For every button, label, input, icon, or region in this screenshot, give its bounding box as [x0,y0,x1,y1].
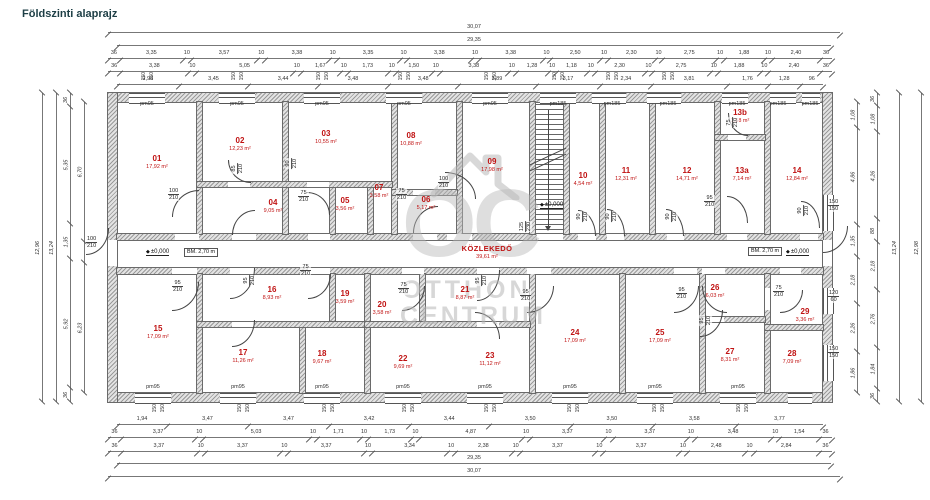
door-size-label: 85210 [231,163,244,174]
dimension-value: 1,73 [368,429,411,436]
room-area: 5,17 m² [396,205,456,211]
dimension-value: 10 [329,50,337,57]
level-marker: ±0,000 [146,249,169,256]
dimension-value: 10 [522,429,530,436]
dimension-value: 2,76 [870,314,876,325]
room-label: 0917,98 m² [462,157,522,173]
dimension-segment: 36 [62,388,70,402]
door-size-label: 95210 [699,315,712,326]
dimension-value: 1,35 [63,236,69,247]
room-area: 17,92 m² [127,164,187,170]
parapet-label: pm185 [656,101,680,107]
parapet-label: pm95 [310,101,334,107]
parapet-label: pm95 [558,384,582,390]
wall [765,325,823,330]
dimension-value: 3,37 [520,443,596,450]
dimension-column: 13,24 [48,93,57,402]
dimension-value: 10 [293,63,301,70]
dimension-value: 3,89 [458,76,535,83]
dimension-value: 3,48 [318,76,388,83]
dimension-value: 2,26 [850,323,856,334]
dimension-value: 2,40 [772,50,820,57]
parapet-label: pm95 [310,384,334,390]
stair-direction-arrow [545,226,551,231]
dimension-value: 6,70 [77,166,83,177]
wall [392,102,397,234]
dimension-value: 10 [340,63,348,70]
room-area: 1,58 m² [710,118,770,124]
door-size-label: 95210 [676,287,687,300]
room-area: 3,56 m² [315,206,375,212]
dimension-value: 3,38 [479,50,543,57]
door-arc [727,196,748,223]
window-dim-pair: 150150 [736,404,750,412]
dimension-row: 363,37103,37103,37103,34102,38103,37103,… [108,443,832,452]
dimension-column: 6,706,23 [76,102,85,393]
dimension-value: 1,94 [117,416,167,423]
door-opening [537,234,563,240]
room-number: 13b [710,108,770,117]
dimension-column: 361,084,26882,182,761,8436 [869,93,878,402]
dimension-segment: 2,26 [849,304,857,352]
window-dim-pair: 150150 [237,404,251,412]
door-opening [674,268,697,274]
dimension-segment: 4,86 [849,128,857,225]
door-size-label: 75210 [300,264,311,277]
dimension-value: 29,35 [117,37,831,44]
dimension-value: 10 [645,63,653,70]
dimension-value: 10 [716,50,724,57]
dimension-value: 10 [745,443,753,450]
door-opening [728,135,746,140]
door-opening [702,268,725,274]
door-size-label: 75210 [773,285,784,298]
entrance-opening [108,240,117,266]
room-label: 0212,23 m² [210,136,270,152]
door-size-label: 90210 [576,211,589,222]
window [220,393,256,404]
room-area: 10,88 m² [381,141,441,147]
room-number: 21 [435,285,495,294]
dimension-value: 10 [471,50,479,57]
dimension-row: 363,37105,03101,71101,73104,87103,37103,… [108,429,832,438]
room-number: 26 [685,283,745,292]
dimension-value: 30,07 [108,24,840,31]
door-size-label: 95210 [475,275,488,286]
room-number: 28 [762,349,822,358]
door-size-label: 75210 [398,282,409,295]
dimension-segment: 36 [869,389,877,402]
parapet-label: pm185 [798,101,822,107]
door-size-label: 100210 [438,176,449,189]
room-area: 6,03 m² [685,293,745,299]
parapet-label: pm95 [643,384,667,390]
dimension-value: 5,05 [196,63,293,70]
dimension-value: 10 [508,63,516,70]
room-number: 25 [630,328,690,337]
room-number: 01 [127,154,187,163]
window [304,393,340,404]
dimension-value: 5,92 [63,318,69,329]
dimension-value: 3,37 [288,443,364,450]
dimension-value: 36 [108,50,120,57]
window-size-label: 150150 [828,199,839,212]
dimension-value: 1,28 [768,76,801,83]
dimension-value: 29,35 [117,455,831,462]
parapet-label: pm95 [141,384,165,390]
window [467,393,503,404]
dimension-value: 3,50 [571,416,653,423]
door-size-label: 90210 [797,205,810,216]
room-number: 29 [775,307,835,316]
parapet-label: pm185 [766,101,790,107]
room-number: 03 [296,129,356,138]
dimension-value: 2,84 [754,443,819,450]
dimension-value: 10 [432,63,440,70]
room-label: 1112,31 m² [596,166,656,182]
dimension-value: 1,88 [724,50,764,57]
room-label: 2417,09 m² [545,328,605,344]
window [552,393,588,404]
window [720,393,756,404]
dimension-value: 10 [188,63,196,70]
dimension-value: 2,18 [870,261,876,272]
stair-direction-line [548,110,549,228]
room-area: 10,55 m² [296,139,356,145]
room-area: 11,12 m² [460,361,520,367]
dimension-segment: 2,76 [869,290,877,349]
dimension-value: 1,08 [850,110,856,121]
dimension-value: 10 [771,429,779,436]
room-number: 20 [352,300,412,309]
room-number: 15 [128,324,188,333]
dimension-value: 1,76 [727,76,768,83]
dimension-value: 12,98 [914,241,920,255]
room-label: 266,03 m² [685,283,745,299]
door-size-label: 90210 [665,211,678,222]
dimension-segment: 5,35 [62,107,70,225]
parapet-label: pm95 [473,384,497,390]
room-area: 3,36 m² [775,317,835,323]
room-label: 0117,92 m² [127,154,187,170]
room-number: 23 [460,351,520,360]
dimension-value: 1,08 [870,114,876,125]
parapet-label: pm95 [392,101,416,107]
room-area: 8,93 m² [242,295,302,301]
parapet-label: pm95 [391,384,415,390]
room-label: 1711,26 m² [213,348,273,364]
dimension-segment: 13,24 [48,93,56,402]
dimension-value: 2,34 [600,76,651,83]
door-size-label: 95210 [520,289,531,302]
dimension-value: 10 [679,443,687,450]
dimension-value: 10 [183,50,191,57]
door-size-label: 95210 [172,280,183,293]
parapet-label: pm185 [546,101,570,107]
dimension-value: 10 [760,63,768,70]
room-label: 287,09 m² [762,349,822,365]
dimension-value: 5,03 [203,429,309,436]
dimension-value: 1,86 [850,367,856,378]
dimension-segment: 4,26 [869,132,877,219]
dimension-value: 4,86 [850,172,856,183]
door-size-label: 75210 [396,188,407,201]
dimension-value: 1,88 [718,63,761,70]
dimension-row: 2,983,453,443,483,483,893,172,343,811,76… [117,76,823,85]
room-number: 18 [292,349,352,358]
dimension-value: 1,67 [301,63,340,70]
dimension-value: 3,77 [736,416,823,423]
dimension-value: 10 [388,63,396,70]
room-number: 11 [596,166,656,175]
door-arc [232,320,255,347]
door-size-label: 100210 [168,188,179,201]
room-label: 218,87 m² [435,285,495,301]
dimension-column: 12,98 [913,93,922,402]
dimension-value: 3,45 [179,76,249,83]
dimension-value: 3,48 [388,76,458,83]
dimension-value: 10 [710,63,718,70]
dimension-value: 3,17 [536,76,601,83]
dimension-value: 3,38 [440,63,508,70]
dimension-value: 3,44 [409,416,489,423]
dimension-value: 1,28 [516,63,548,70]
dimension-value: 10 [512,443,520,450]
dimension-value: 10 [257,50,265,57]
dimension-value: 10 [604,429,612,436]
window-dim-pair: 150150 [652,404,666,412]
dimension-value: 3,37 [205,443,281,450]
room-area: 9,69 m² [373,364,433,370]
dimension-value: 3,38 [407,50,471,57]
room-number: 02 [210,136,270,145]
room-area: 17,09 m² [630,338,690,344]
dimension-column: 1,084,861,352,182,261,86 [849,102,858,393]
dimension-value: 10 [309,429,317,436]
door-size-label: 75210 [298,190,309,203]
wall [564,102,569,234]
dimension-value: 3,37 [613,429,687,436]
dimension-value: 5,35 [63,160,69,171]
dimension-value: 10 [400,50,408,57]
dimension-value: 10 [197,443,205,450]
room-number: 09 [462,157,522,166]
dimension-value: 3,35 [337,50,400,57]
dimension-row-total: 30,07 [108,468,840,477]
room-label: 2311,12 m² [460,351,520,367]
dimension-value: 2,75 [662,50,716,57]
dimension-segment: 1,86 [849,352,857,393]
room-number: 16 [242,285,302,294]
room-number: 13a [712,166,772,175]
room-area: 12,84 m² [767,176,827,182]
staircase [535,104,564,234]
dimension-value: 3,48 [695,429,771,436]
corridor-label: KÖZLEKEDŐ39,61 m² [442,244,532,260]
parapet-label: pm95 [135,101,159,107]
dimension-value: 36 [63,97,69,103]
room-area: 17,09 m² [545,338,605,344]
ceiling-height-box: BM. 2,70 m [748,247,782,256]
room-label: 2517,09 m² [630,328,690,344]
window [637,393,673,404]
room-label: 1517,09 m² [128,324,188,340]
dimension-value: 36 [819,429,832,436]
dimension-segment: 12,96 [34,93,42,402]
dimension-value: 10 [447,443,455,450]
room-label: 13a7,14 m² [712,166,772,182]
room-number: 22 [373,354,433,363]
door-size-label: 100210 [86,236,97,249]
door-opening [800,234,818,240]
dimension-value: 3,47 [167,416,248,423]
dimension-value: 13,24 [49,241,55,255]
dimension-value: 3,37 [121,443,197,450]
room-area: 8,87 m² [435,295,495,301]
room-label: 1412,84 m² [767,166,827,182]
dimension-value: 10 [195,429,203,436]
dimension-row: 1,943,473,473,423,443,503,503,583,77 [117,416,823,425]
dimension-value: 10 [764,50,772,57]
dimension-segment: 1,35 [62,224,70,258]
dimension-value: 10 [600,50,608,57]
room-area: 9,05 m² [243,208,303,214]
dimension-value: 36 [108,429,121,436]
dimension-value: 1,71 [317,429,360,436]
dimension-value: 36 [819,443,832,450]
dimension-value: 36 [63,392,69,398]
dimension-value: 1,54 [779,429,819,436]
dimension-value: 10 [548,63,556,70]
dimension-value: 88 [870,228,876,234]
page-title: Földszinti alaprajz [22,8,117,20]
dimension-value: 3,58 [653,416,736,423]
window [135,393,171,404]
dimension-value: 36 [870,393,876,399]
dimension-value: 3,47 [248,416,329,423]
dimension-value: 10 [543,50,551,57]
room-area: 12,31 m² [596,176,656,182]
dimension-value: 10 [411,429,419,436]
room-label: 293,36 m² [775,307,835,323]
room-label: 049,05 m² [243,198,303,214]
window [385,393,421,404]
wall [197,274,202,393]
dimension-value: 36 [108,63,120,70]
dimension-value: 1,50 [396,63,432,70]
dimension-value: 2,50 [550,50,600,57]
door-opening [765,288,770,310]
dimension-value: 10 [655,50,663,57]
room-label: 278,31 m² [700,347,760,363]
dimension-column: 365,351,355,9236 [62,93,71,402]
room-number: 27 [700,347,760,356]
dimension-value: 3,37 [603,443,679,450]
parapet-label: pm95 [726,384,750,390]
dimension-value: 96 [800,76,823,83]
dimension-value: 3,38 [120,63,188,70]
room-area: 3,58 m² [352,310,412,316]
dimension-value: 4,87 [419,429,522,436]
room-area: 8,31 m² [700,357,760,363]
room-area: 17,09 m² [128,334,188,340]
dimension-segment: 2,18 [869,242,877,289]
dimension-value: 3,44 [248,76,318,83]
dimension-value: 1,35 [850,236,856,247]
dimension-segment: 13,24 [891,93,899,402]
dimension-row: 363,38105,05101,67101,73101,50103,38101,… [108,63,832,72]
window-dim-pair: 150150 [402,404,416,412]
dimension-segment: 1,84 [869,348,877,389]
window-dim-pair: 150150 [484,404,498,412]
dimension-value: 3,50 [489,416,571,423]
dimension-segment: 2,18 [849,257,857,304]
dimension-value: 1,84 [870,363,876,374]
room-number: 19 [315,289,375,298]
dimension-value: 10 [587,63,595,70]
parapet-label: pm95 [226,384,250,390]
dimension-row: 29,35 [117,455,831,464]
dimension-value: 36 [108,443,121,450]
room-label: 13b1,58 m² [710,108,770,124]
window-size-label: 12060 [828,290,839,303]
dimension-value: 3,35 [120,50,183,57]
dimension-value: 3,81 [651,76,727,83]
window-dim-pair: 150150 [152,404,166,412]
dimension-value: 2,48 [687,443,745,450]
room-number: 04 [243,198,303,207]
door-opening [727,234,747,240]
door-opening [172,268,197,274]
dimension-value: 36 [820,63,832,70]
dimension-value: 12,96 [35,241,41,255]
window [788,393,812,404]
window-size-label: 150150 [828,346,839,359]
wall [197,322,365,327]
room-area: 9,67 m² [292,359,352,365]
level-marker: ±0,000 [540,202,563,209]
door-opening [308,234,330,240]
room-label: 0310,55 m² [296,129,356,145]
dimension-value: 2,40 [768,63,820,70]
dimension-row: 363,35103,57103,38103,35103,38103,38102,… [108,50,832,59]
parapet-label: pm95 [478,101,502,107]
ceiling-height-box: BM. 2,70 m [184,248,218,257]
dimension-value: 6,23 [77,323,83,334]
room-area: 14,71 m² [657,176,717,182]
door-size-label: 75210 [726,117,739,128]
dimension-value: 10 [360,429,368,436]
room-label: 168,93 m² [242,285,302,301]
room-area: 7,14 m² [712,176,772,182]
dimension-value: 2,30 [595,63,645,70]
door-size-label: 95210 [704,195,715,208]
dimension-value: 1,18 [556,63,587,70]
corridor-area: 39,61 m² [442,254,532,260]
parapet-label: pm95 [225,101,249,107]
dimension-column: 13,24 [891,93,900,402]
dimension-segment: 5,92 [62,259,70,389]
room-label: 229,69 m² [373,354,433,370]
dimension-value: 10 [364,443,372,450]
door-opening [175,234,199,240]
room-area: 17,98 m² [462,167,522,173]
corridor-name: KÖZLEKEDŐ [442,244,532,253]
dimension-value: 2,75 [652,63,710,70]
room-number: 14 [767,166,827,175]
dimension-value: 36 [820,50,832,57]
window-dim-pair: 150150 [322,404,336,412]
